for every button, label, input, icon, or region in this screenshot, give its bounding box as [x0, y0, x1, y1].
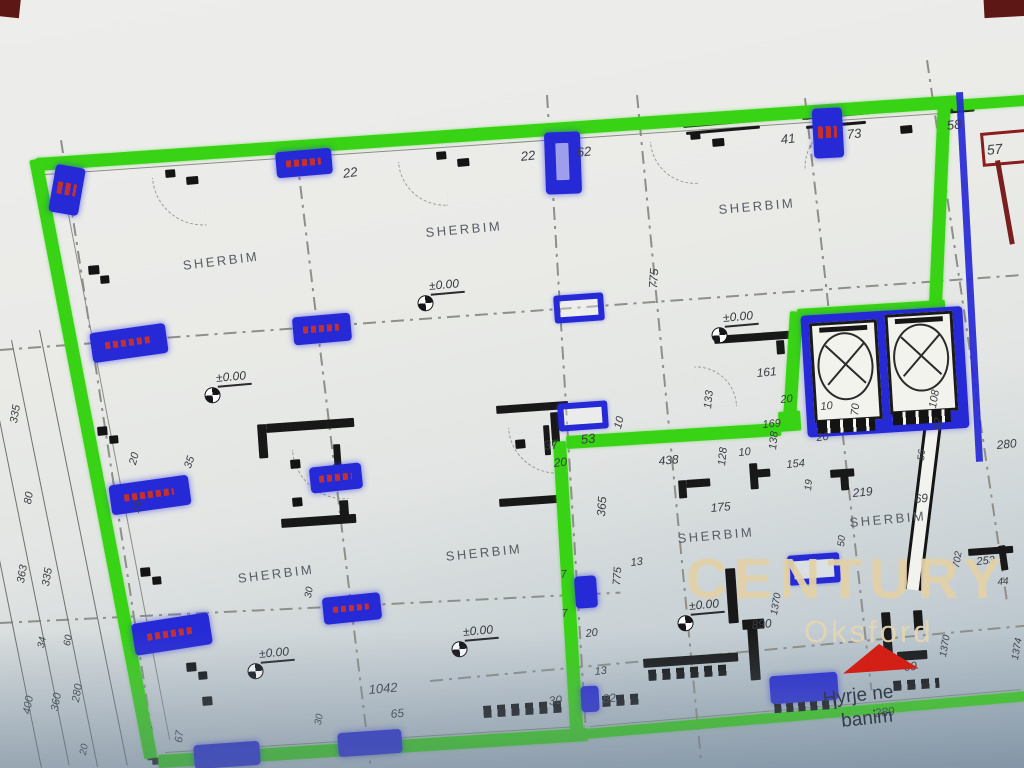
- elevator-cab-circle: [891, 322, 951, 393]
- dimension-chain: [0, 560, 42, 768]
- dimension-label: 58: [946, 116, 962, 132]
- red-annotation: [286, 158, 321, 167]
- red-annotation: [333, 603, 369, 613]
- dimension-label: 175: [710, 499, 731, 515]
- door-highlight: [580, 686, 599, 713]
- dimension-label: 30: [303, 586, 316, 599]
- dimension-label: 65: [390, 706, 405, 721]
- red-annotation: [818, 126, 837, 139]
- room-label: SHERBIM: [445, 541, 523, 564]
- dimension-label: 52: [931, 417, 945, 431]
- door-jamb-mark: [186, 662, 197, 672]
- dimension-label: 280: [996, 436, 1017, 452]
- room-label: SHERBIM: [237, 562, 315, 586]
- radiator-highlight: [322, 592, 383, 625]
- dimension-label: 19: [803, 479, 815, 491]
- window-highlight: [193, 741, 261, 768]
- room-label: SHERBIM: [718, 195, 796, 217]
- door-jamb-mark: [198, 671, 208, 680]
- dimension-label: 7: [560, 568, 567, 581]
- dimension-label: 10: [820, 400, 833, 413]
- dimension-label: 335: [8, 404, 23, 424]
- door-jamb-mark: [515, 439, 526, 449]
- photo-corner-artifact: [984, 0, 1024, 18]
- dimension-label: 22: [342, 164, 358, 181]
- dimension-label: 62: [576, 143, 592, 159]
- dimension-label: 20: [553, 455, 568, 470]
- elevation-value: ±0.00: [722, 308, 753, 325]
- column-highlight: [812, 107, 845, 159]
- column-highlight: [557, 400, 609, 431]
- elevation-symbol: [204, 387, 221, 404]
- dimension-label: 363: [15, 564, 30, 584]
- window-highlight: [275, 148, 333, 179]
- elevation-value: ±0.00: [258, 644, 289, 661]
- dimension-label: 53: [580, 430, 596, 446]
- window-highlight: [48, 164, 86, 216]
- elevation-marker: ±0.00: [416, 281, 478, 312]
- elevator-cab-circle: [816, 331, 876, 402]
- dimension-label: 219: [852, 484, 873, 500]
- wall-segment: [678, 480, 687, 499]
- elevator-lintel: [895, 316, 942, 324]
- elevation-value: ±0.00: [428, 276, 459, 293]
- dimension-label: 22: [520, 147, 536, 163]
- dimension-label: 20: [816, 431, 829, 444]
- elevation-marker: ±0.00: [450, 627, 512, 658]
- window-highlight: [337, 729, 403, 757]
- elevator-shaft: [884, 311, 958, 415]
- unit-boundary-notch: [778, 410, 801, 431]
- door-swing-arc: [398, 159, 448, 209]
- dimension-label: 57: [986, 140, 1003, 158]
- door-jamb-mark: [140, 567, 151, 577]
- dimension-label: 56: [916, 449, 928, 461]
- elevation-symbol: [451, 641, 468, 658]
- door-swing-arc: [650, 139, 698, 187]
- door-jamb-mark: [290, 459, 301, 469]
- dimension-label: 169: [762, 417, 781, 431]
- dimension-label: 30: [548, 693, 563, 708]
- alert-line: [995, 160, 1015, 245]
- dimension-label: 30: [313, 713, 326, 726]
- elevation-marker: ±0.00: [710, 313, 772, 344]
- column-highlight: [309, 462, 363, 493]
- dimension-label: 20: [780, 393, 793, 406]
- radiator-highlight: [89, 323, 168, 363]
- wall-hatch: [893, 678, 940, 691]
- elevator-lintel: [820, 325, 867, 333]
- door-jamb-mark: [712, 138, 725, 147]
- photo-corner-artifact: [0, 0, 21, 18]
- wall-segment: [266, 418, 354, 433]
- elevation-symbol: [417, 295, 434, 312]
- dimension-label: 10: [738, 446, 751, 459]
- dimension-label: 400: [21, 695, 36, 715]
- dimension-label: 20: [585, 627, 598, 640]
- dimension-label: 128: [716, 447, 730, 467]
- door-jamb-mark: [109, 435, 119, 444]
- door-jamb-mark: [97, 426, 108, 436]
- dimension-label: 365: [594, 496, 609, 517]
- room-label: SHERBIM: [425, 218, 503, 240]
- dimension-label: 775: [611, 567, 624, 586]
- dimension-label: 13: [594, 665, 607, 678]
- radiator-highlight: [108, 475, 191, 516]
- door-highlight: [574, 575, 598, 608]
- column-highlight: [553, 292, 605, 323]
- red-annotation: [303, 324, 339, 334]
- dimension-label: 37: [543, 436, 559, 452]
- dimension-label: 138: [767, 431, 781, 451]
- dimension-label: 360: [49, 692, 64, 712]
- entrance-label: Hyrje ne banim: [822, 680, 897, 735]
- door-jamb-mark: [165, 169, 176, 178]
- wall-segment: [499, 495, 559, 507]
- dimension-label: 82: [602, 691, 617, 706]
- column-highlight: [292, 313, 352, 346]
- dimension-label: 10: [612, 415, 627, 430]
- door-jamb-mark: [436, 151, 447, 160]
- grid-axis-vertical: [60, 140, 158, 768]
- room-label: SHERBIM: [182, 249, 260, 273]
- wall-face-line: [61, 178, 170, 740]
- watermark: CENTURY 21® Oksford: [686, 546, 1024, 650]
- red-annotation: [57, 182, 77, 197]
- door-jamb-mark: [152, 576, 162, 585]
- red-annotation: [147, 626, 196, 641]
- dimension-label: 438: [658, 452, 679, 468]
- dimension-label: 335: [40, 567, 55, 587]
- wall-segment: [686, 478, 710, 488]
- dimension-label: 41: [780, 130, 796, 146]
- dimension-label: 35: [182, 454, 197, 470]
- elevation-marker: ±0.00: [203, 373, 265, 404]
- dimension-label: 70: [849, 403, 862, 416]
- red-annotation: [319, 473, 352, 483]
- wall-segment: [840, 472, 849, 491]
- dimension-label: 161: [756, 364, 777, 380]
- elevation-value: ±0.00: [462, 622, 493, 639]
- door-jamb-mark: [186, 176, 199, 185]
- door-jamb-mark: [457, 158, 470, 167]
- column-highlight: [544, 131, 582, 194]
- dimension-label: 69: [914, 491, 929, 506]
- door-jamb-mark: [900, 125, 913, 134]
- floorplan-photo: 2222624173585777516120133169107020108522…: [0, 0, 1024, 768]
- door-jamb-mark: [88, 265, 100, 275]
- dimension-label: 67: [173, 730, 186, 743]
- door-jamb-mark: [292, 497, 303, 507]
- door-jamb-mark: [202, 696, 213, 706]
- elevation-marker: ±0.00: [246, 649, 308, 680]
- wall-segment: [750, 469, 771, 478]
- watermark-brand: CENTURY 21: [686, 547, 1024, 611]
- radiator-highlight: [131, 612, 213, 656]
- dimension-label: 20: [127, 451, 142, 466]
- wall-segment: [339, 500, 349, 521]
- wall-hatch: [648, 664, 729, 681]
- red-annotation: [104, 336, 152, 350]
- dimension-label: 775: [646, 268, 661, 289]
- dimension-label: 133: [702, 390, 716, 410]
- dimension-chain: [0, 420, 70, 765]
- dimension-label: 7: [561, 607, 568, 620]
- watermark-office: Oksford: [804, 614, 1024, 650]
- column-core: [555, 143, 569, 181]
- door-jamb-mark: [100, 275, 110, 284]
- door-swing-arc: [695, 365, 737, 407]
- wall-segment: [776, 340, 785, 355]
- dimension-label: 34: [36, 636, 49, 649]
- dimension-label: 13: [630, 556, 643, 569]
- dimension-label: 80: [22, 491, 36, 505]
- elevation-symbol: [247, 663, 264, 680]
- red-annotation: [124, 487, 174, 501]
- dimension-label: 20: [78, 743, 91, 756]
- entrance-label-line2: banim: [840, 704, 897, 733]
- door-jamb-mark: [690, 131, 701, 140]
- dimension-label: 73: [846, 125, 862, 141]
- dimension-label: 1042: [368, 679, 398, 696]
- dimension-label: 60: [62, 634, 75, 647]
- elevation-value: ±0.00: [215, 368, 246, 385]
- room-label: SHERBIM: [677, 524, 755, 546]
- dimension-label: 154: [786, 457, 805, 471]
- elevation-symbol: [711, 327, 728, 344]
